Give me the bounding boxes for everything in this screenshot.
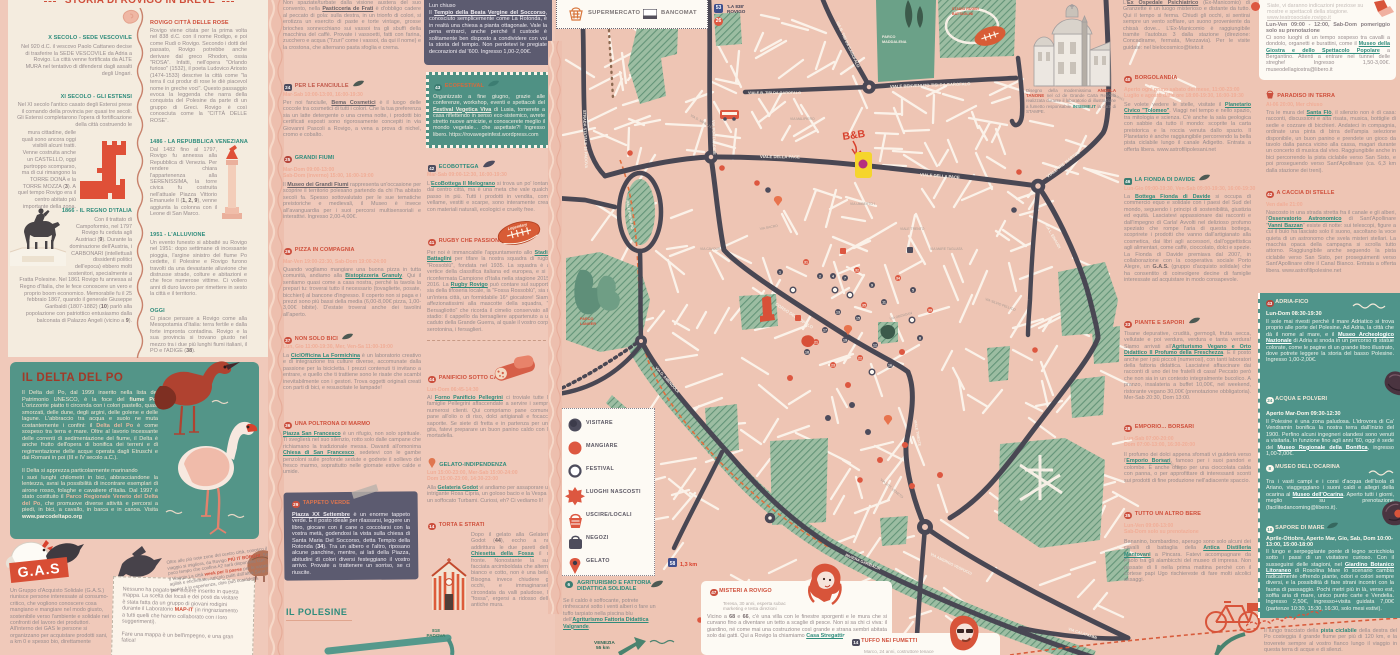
svg-text:PADOVA: PADOVA (427, 633, 447, 638)
svg-text:PARCO: PARCO (882, 35, 895, 39)
svg-text:21: 21 (814, 340, 818, 344)
svg-text:9: 9 (871, 283, 873, 287)
svg-text:16: 16 (888, 363, 892, 367)
svg-text:4: 4 (832, 274, 834, 278)
svg-text:13: 13 (836, 310, 840, 314)
svg-text:2: 2 (819, 274, 821, 278)
svg-text:58: 58 (670, 561, 676, 567)
svg-text:STADIO RUGBY: STADIO RUGBY (952, 7, 980, 11)
svg-text:7: 7 (844, 276, 846, 280)
svg-text:31: 31 (804, 260, 808, 264)
svg-text:12: 12 (873, 343, 877, 347)
svg-text:5: 5 (912, 288, 914, 292)
svg-text:PARCO: PARCO (580, 317, 593, 321)
svg-text:11: 11 (882, 300, 886, 304)
svg-text:VIA UMBERTO I: VIA UMBERTO I (850, 202, 875, 206)
svg-text:VIA MALIPIERO: VIA MALIPIERO (790, 117, 815, 121)
svg-text:VIALE B. TISI DA GAROFALO: VIALE B. TISI DA GAROFALO (748, 91, 801, 95)
svg-text:VIA CAVOUR: VIA CAVOUR (700, 247, 721, 251)
svg-text:MADDALENA: MADDALENA (882, 40, 907, 44)
svg-text:22: 22 (858, 356, 862, 360)
svg-text:19: 19 (843, 338, 847, 342)
svg-text:VIA MARE TAGLIATA: VIA MARE TAGLIATA (930, 247, 963, 251)
svg-text:35: 35 (862, 303, 866, 307)
svg-text:15: 15 (856, 316, 860, 320)
svg-text:VIALE DELLA PACE: VIALE DELLA PACE (760, 154, 800, 159)
svg-text:BATTAGLINI: BATTAGLINI (952, 12, 973, 16)
svg-text:23: 23 (831, 363, 835, 367)
svg-text:39: 39 (928, 308, 932, 312)
svg-text:1: 1 (779, 270, 781, 274)
svg-text:55 km: 55 km (596, 645, 610, 651)
svg-text:LANGER: LANGER (580, 322, 596, 326)
svg-text:18: 18 (805, 350, 809, 354)
svg-text:32: 32 (855, 268, 859, 272)
svg-text:8: 8 (919, 336, 921, 340)
svg-text:1,3 km: 1,3 km (680, 562, 697, 568)
svg-text:VIALE TRENTO: VIALE TRENTO (900, 227, 925, 231)
svg-text:17: 17 (823, 328, 827, 332)
svg-text:34: 34 (896, 276, 900, 280)
